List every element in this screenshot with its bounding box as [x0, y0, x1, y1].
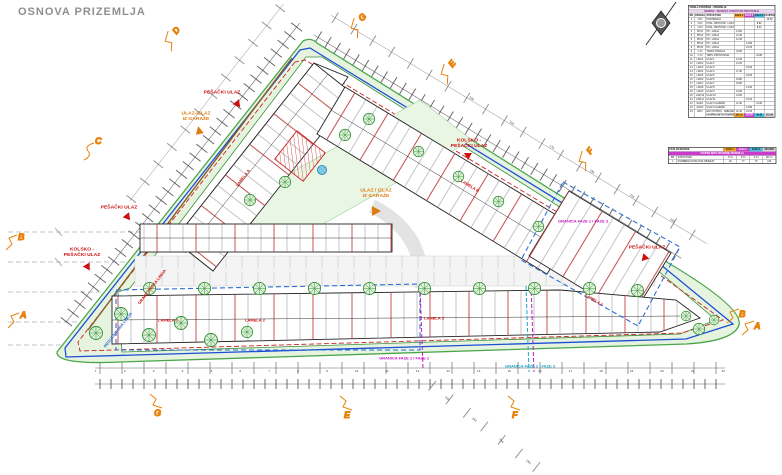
phase-table-rows: 1 STAMBENO-POSLOVNI OBJEKAT 62 77 76 215 [669, 160, 776, 164]
phase-boundary-label: GRANICA FAZE 1 I FAZE 2 [379, 356, 429, 361]
svg-text:E: E [446, 57, 458, 69]
axis-numbers-bottom: 12345678910111213141516171819202122 [95, 370, 725, 373]
floor-plan-sheet: OSNOVA PRIZEMLJA [0, 0, 782, 475]
svg-text:G: G [356, 11, 368, 23]
svg-text:A: A [19, 310, 27, 320]
north-arrow-icon [646, 2, 676, 45]
lamela-label: LAMELA 3 [424, 316, 444, 321]
entrance-label-garage-2: ULAZ / IZLAZIZ GARAŽE [360, 187, 391, 198]
phase-boundary-label: GRANICA FAZE 2 I FAZE 3 [505, 364, 555, 369]
entrance-label-garage-1: ULAZ-IZLAZIZ GARAŽE [182, 110, 211, 121]
svg-text:A: A [753, 321, 761, 331]
area-table-rows: 1 1.P.1 PORTIRNICA 13.50 2 1.P.2 POSL. P… [689, 18, 775, 114]
svg-text:F: F [584, 145, 596, 156]
site-plan-drawing: D G E F C B A B A G E F [0, 0, 782, 475]
svg-text:E: E [344, 410, 351, 420]
entrance-label-vehicle-pedestrian-1: KOLSKO -PEŠAČKI ULAZ [64, 246, 101, 257]
svg-text:G: G [154, 408, 161, 418]
svg-text:B: B [18, 232, 25, 242]
table-row: 1 STAMBENO-POSLOVNI OBJEKAT 62 77 76 215 [669, 160, 776, 164]
svg-text:C: C [95, 136, 102, 146]
svg-text:F: F [512, 410, 518, 420]
entrance-label-pedestrian-1: PEŠAČKI ULAZ [204, 89, 241, 95]
garage-arrow-right-icon [372, 206, 381, 216]
building-middle-band [140, 224, 392, 252]
section-letter: D [170, 24, 182, 36]
lamela-label: LAMELA 1 [158, 318, 178, 323]
garage-arrow-icon [194, 125, 203, 134]
fountain [318, 166, 327, 175]
lamela-label: LAMELA 2 [245, 318, 265, 323]
phase-table: FAZE IZGRADNJE FAZA 1 FAZA 2 FAZA 3 UKUP… [668, 147, 776, 164]
entrance-arrow-icon [464, 153, 472, 160]
page-title: OSNOVA PRIZEMLJA [18, 6, 146, 18]
svg-text:B: B [739, 309, 746, 319]
entrance-label-pedestrian-2: PEŠAČKI ULAZ [101, 204, 138, 210]
entrance-label-vehicle-pedestrian-2: KOLSKO -PEŠAČKI ULAZ [451, 137, 488, 148]
entrance-label-pedestrian-3: PEŠAČKI ULAZ [629, 244, 666, 250]
area-table: TABELA POVRŠINA - PRIZEMLJE NAMENA - TEH… [688, 5, 775, 118]
phase-boundary-label: GRANICA FAZE 2 I FAZE 3 [558, 219, 608, 224]
